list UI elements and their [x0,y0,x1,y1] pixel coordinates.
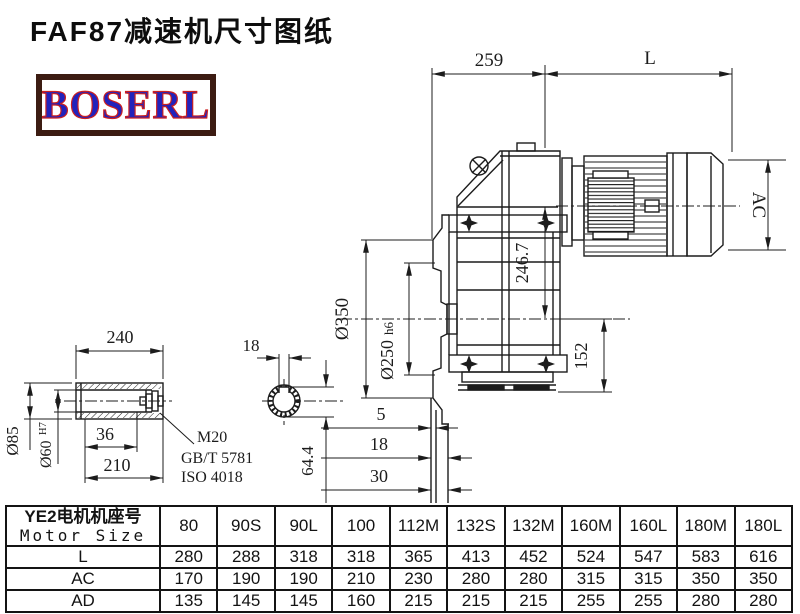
cell-AC-90S: 190 [217,568,274,590]
cell-AC-112M: 230 [390,568,447,590]
page-title: FAF87减速机尺寸图纸 [30,10,334,50]
cell-AC-160M: 315 [562,568,619,590]
motor-size-table: YE2电机机座号 Motor Size 8090S90L100112M132S1… [5,505,793,613]
dim-L: L [644,48,656,69]
col-header-80: 80 [160,506,217,546]
header-cn: YE2电机机座号 [7,508,159,527]
stator-lamination [588,178,634,232]
boserl-logo: BOSERL [36,74,216,136]
dim-18-key: 18 [243,336,260,355]
flange-bolt-icon [539,357,553,371]
cell-L-180L: 616 [735,546,792,568]
dim-350: Ø350 [332,298,353,340]
col-header-132S: 132S [447,506,504,546]
cell-AC-132S: 280 [447,568,504,590]
col-header-160L: 160L [620,506,677,546]
label-standard-gb: GB/T 5781 [181,450,253,467]
table-row-L: L280288318318365413452524547583616 [6,546,792,568]
dim-250-tol: h6 [381,322,396,336]
col-header-100: 100 [332,506,389,546]
dim-5: 5 [377,404,386,424]
table-header-row: YE2电机机座号 Motor Size 8090S90L100112M132S1… [6,506,792,546]
label-standard-iso: ISO 4018 [181,469,243,486]
header-en: Motor Size [7,527,159,545]
cell-AD-132M: 215 [505,590,562,612]
dim-210: 210 [104,455,131,475]
cell-L-100: 318 [332,546,389,568]
dim-152: 152 [571,343,591,370]
table-header-motor-size: YE2电机机座号 Motor Size [6,506,160,546]
fan-cover [687,153,723,256]
cell-AC-80: 170 [160,568,217,590]
cell-AD-90L: 145 [275,590,332,612]
flange-bolt-icon [539,216,553,230]
dim-60: Ø60 [38,440,55,468]
dim-240: 240 [107,327,134,347]
motor-view [562,153,723,256]
col-header-90L: 90L [275,506,332,546]
row-label-AD: AD [6,590,160,612]
dimension-drawing-page: 259 L AC 246.7 152 Ø350 Ø250 h6 5 18 30 … [0,0,800,614]
dim-AC: AC [748,192,769,218]
table-row-AC: AC170190190210230280280315315350350 [6,568,792,590]
col-header-180L: 180L [735,506,792,546]
dim-18-step: 18 [370,434,388,454]
cell-AD-180M: 280 [677,590,734,612]
col-header-112M: 112M [390,506,447,546]
flange-bolt-icon [462,357,476,371]
cell-AC-160L: 315 [620,568,677,590]
row-label-AC: AC [6,568,160,590]
col-header-132M: 132M [505,506,562,546]
cell-L-160L: 547 [620,546,677,568]
label-thread-m20: M20 [197,429,227,446]
cell-L-112M: 365 [390,546,447,568]
dim-36: 36 [96,424,114,444]
cell-L-90S: 288 [217,546,274,568]
cell-AD-90S: 145 [217,590,274,612]
cell-AD-112M: 215 [390,590,447,612]
boserl-logo-text: BOSERL [42,85,210,125]
col-header-90S: 90S [217,506,274,546]
dim-246-7: 246.7 [512,243,532,284]
dim-259: 259 [475,50,504,71]
cell-L-80: 280 [160,546,217,568]
cell-AC-132M: 280 [505,568,562,590]
dim-60-tol: H7 [38,422,49,435]
row-label-L: L [6,546,160,568]
cell-AD-132S: 215 [447,590,504,612]
centerlines [64,206,740,425]
dim-250: Ø250 [377,340,397,380]
cell-AC-180M: 350 [677,568,734,590]
cell-AC-90L: 190 [275,568,332,590]
cell-AC-100: 210 [332,568,389,590]
cell-AD-80: 135 [160,590,217,612]
flange-bolt-icon [462,216,476,230]
dim-30: 30 [370,466,388,486]
shaft-section-view [268,385,300,417]
dim-85: Ø85 [3,426,22,455]
col-header-160M: 160M [562,506,619,546]
dim-64-4: 64.4 [298,446,317,476]
cell-L-160M: 524 [562,546,619,568]
cell-AD-160M: 255 [562,590,619,612]
cell-AD-100: 160 [332,590,389,612]
cell-AD-160L: 255 [620,590,677,612]
col-header-180M: 180M [677,506,734,546]
cell-L-132M: 452 [505,546,562,568]
cell-L-132S: 413 [447,546,504,568]
gearbox-front-view [431,143,567,503]
cell-L-90L: 318 [275,546,332,568]
cell-AD-180L: 280 [735,590,792,612]
table-row-AD: AD135145145160215215215255255280280 [6,590,792,612]
cell-AC-180L: 350 [735,568,792,590]
cell-L-180M: 583 [677,546,734,568]
